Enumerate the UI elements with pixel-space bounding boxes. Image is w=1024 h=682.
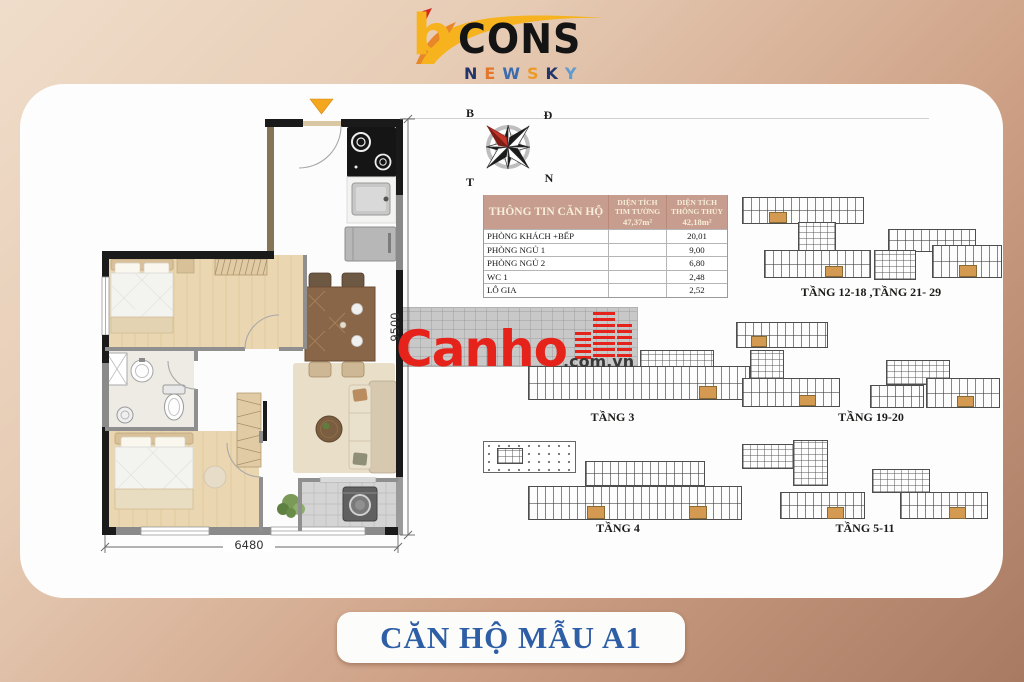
table-row: LÔ GIA 2,52 <box>484 283 727 297</box>
logo-letter: K <box>546 64 558 83</box>
plan-width-dimension: 6480 <box>234 538 263 552</box>
window <box>141 527 209 535</box>
wall <box>396 477 403 535</box>
compass-east-label: Đ <box>544 108 553 122</box>
logo-letter: Y <box>565 64 577 83</box>
table-header-row: THÔNG TIN CĂN HỘ DIỆN TÍCH TIM TƯỜNG 47,… <box>484 195 727 229</box>
floor-plate-label: TẦNG 12-18 ,TẦNG 21- 29 <box>740 285 1002 300</box>
table-row: PHÒNG NGỦ 1 9,00 <box>484 243 727 257</box>
logo-letter: W <box>502 64 520 83</box>
floor-plate-diagram <box>932 245 1002 278</box>
floor-plate-diagram <box>528 486 742 520</box>
floor-plate-label: TẦNG 5-11 <box>797 521 933 536</box>
apartment-floor-plan: 6480 9500 <box>95 95 435 565</box>
floor-plate-diagram <box>764 250 871 278</box>
washing-area-icon <box>117 407 133 423</box>
table-row: PHÒNG NGỦ 2 6,80 <box>484 256 727 270</box>
logo-b-letter: b <box>412 8 452 64</box>
compass-south-label: N <box>545 171 554 185</box>
toilet-icon <box>163 385 185 420</box>
table-header-title: THÔNG TIN CĂN HỘ <box>484 195 608 229</box>
sofa-icon <box>349 381 397 473</box>
floor-plate-diagram <box>874 250 916 280</box>
floor-plate-diagram <box>585 461 705 486</box>
floor-plate-diagram <box>780 492 865 519</box>
table-header-tim-tuong: DIỆN TÍCH TIM TƯỜNG 47,37m² <box>608 195 666 229</box>
wall <box>396 195 403 270</box>
logo-letter: S <box>527 64 539 83</box>
compass-west-label: T <box>466 175 474 189</box>
floor-plate-diagram <box>926 378 1000 408</box>
wall <box>102 363 109 427</box>
wall <box>341 119 403 127</box>
entrance-arrow-icon <box>310 99 333 114</box>
wall <box>102 427 109 535</box>
logo-cons-text: CONS <box>458 18 581 59</box>
bed1-icon <box>111 259 173 333</box>
floor-plate-diagram <box>793 440 828 486</box>
bcons-logo: b CONS N E W S K Y <box>408 6 618 86</box>
entrance-threshold <box>303 121 341 126</box>
logo-letter: N <box>464 64 477 83</box>
shower-icon <box>107 353 127 385</box>
apartment-title: CĂN HỘ MẪU A1 <box>380 620 642 656</box>
balcony-slider-window <box>320 478 376 482</box>
table-row: WC 1 2,48 <box>484 270 727 284</box>
wardrobe1-icon <box>215 259 267 275</box>
wall <box>385 527 398 535</box>
logo-letter: E <box>484 64 495 83</box>
floor-plate-diagram <box>872 469 930 493</box>
compass-rose-icon: B Đ T N <box>452 100 564 192</box>
window <box>102 277 109 335</box>
washing-machine-icon <box>343 487 377 521</box>
wall <box>267 119 274 259</box>
wardrobe2-icon <box>237 393 261 467</box>
apartment-info-table: THÔNG TIN CĂN HỘ DIỆN TÍCH TIM TƯỜNG 47,… <box>483 195 728 298</box>
floor-plate-diagram <box>742 444 794 469</box>
tv-icon <box>263 401 267 441</box>
watermark-text: Canho <box>396 324 567 374</box>
watermark-domain-text: .com.vn <box>563 352 634 371</box>
logo-newsky-text: N E W S K Y <box>464 64 577 83</box>
floor-plate-label: TẦNG 3 <box>530 410 695 425</box>
floor-plate-label: TẦNG 19-20 <box>792 410 950 425</box>
compass-north-label: B <box>466 106 474 120</box>
floor-plate-diagram <box>798 222 836 252</box>
wall <box>102 251 274 259</box>
floor-plate-diagram <box>870 385 924 408</box>
fridge-icon <box>345 227 396 261</box>
floor-plate-diagram <box>900 492 988 519</box>
apartment-title-banner: CĂN HỘ MẪU A1 <box>337 612 685 663</box>
wall <box>396 119 403 195</box>
nightstand-icon <box>177 259 194 273</box>
pouf-icon <box>204 466 226 488</box>
table-header-thong-thuy: DIỆN TÍCH THÔNG THỦY 42,18m² <box>666 195 727 229</box>
floor-plate-label: TẦNG 4 <box>540 521 696 536</box>
kitchen-cooktop-icon <box>347 127 396 177</box>
coffee-table-icon <box>316 416 342 442</box>
floor-plate-diagram <box>742 197 864 224</box>
dining-table-icon <box>305 273 375 377</box>
kitchen-sink-icon <box>347 177 396 223</box>
table-row: PHÒNG KHÁCH +BẾP 20,01 <box>484 229 727 243</box>
floor-plate-diagram <box>750 350 784 379</box>
floor-plate-diagram <box>742 378 840 407</box>
wall <box>265 119 303 127</box>
floor-plate-diagram <box>497 448 523 464</box>
window <box>271 527 365 535</box>
floor-plate-diagram <box>736 322 828 348</box>
